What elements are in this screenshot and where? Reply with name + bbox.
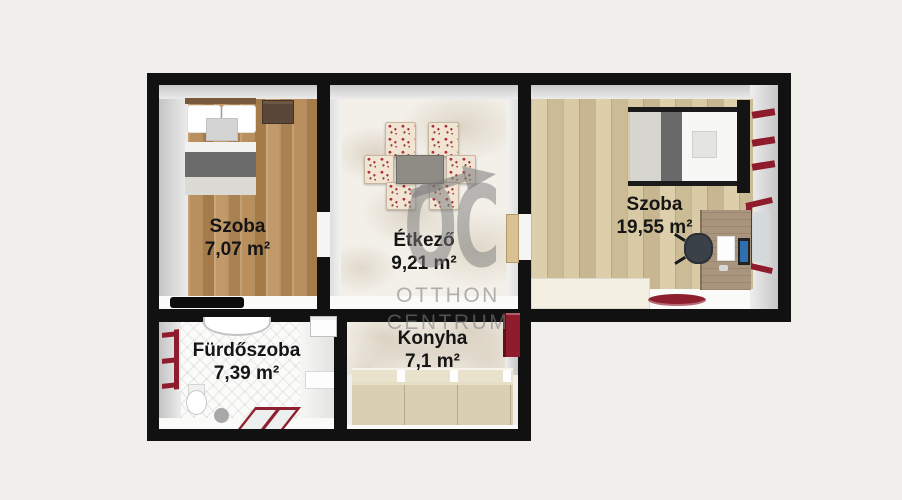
kitchen-label: Konyha 7,1 m²: [347, 327, 518, 373]
bed-mattress: [630, 112, 661, 181]
doorway-dining-bedroom-large: [518, 214, 531, 260]
bed-icon: [628, 105, 753, 198]
room-bedroom-small: Szoba 7,07 m²: [158, 85, 317, 309]
room-name: Konyha: [347, 327, 518, 350]
stool-icon: [214, 408, 229, 423]
room3-right-wall-3d: [750, 85, 778, 309]
nightstand-icon: [262, 100, 294, 124]
room-area: 7,39 m²: [159, 362, 334, 385]
rug-icon: [170, 297, 244, 308]
wardrobe-icon: [531, 278, 650, 309]
room-name: Étkező: [330, 229, 518, 252]
room-area: 9,21 m²: [330, 252, 518, 275]
dining-chair-icon: [386, 182, 416, 210]
room2-label: Étkező 9,21 m²: [330, 229, 518, 275]
room-bathroom: Fürdőszoba 7,39 m²: [159, 322, 334, 429]
mouse-icon: [719, 265, 728, 271]
room-bedroom-large: Szoba 19,55 m²: [531, 85, 778, 309]
room-name: Szoba: [158, 215, 317, 238]
room3-top-wall-3d: [531, 85, 778, 99]
room-name: Fürdőszoba: [159, 339, 334, 362]
room3-label: Szoba 19,55 m²: [571, 193, 738, 239]
bathroom-label: Fürdőszoba 7,39 m²: [159, 339, 334, 385]
wall-outer-top: [147, 73, 791, 85]
dining-chair-icon: [446, 155, 476, 184]
door-icon: [506, 214, 519, 263]
room1-label: Szoba 7,07 m²: [158, 215, 317, 261]
paper-icon: [717, 236, 735, 261]
bed-headboard: [737, 100, 750, 193]
floorplan-canvas: Szoba 7,07 m² Étkező 9,21 m²: [0, 0, 902, 500]
dining-table-icon: [396, 155, 444, 184]
bed-mattress: [185, 177, 256, 195]
bed-blanket: [661, 112, 682, 181]
room1-left-wall-3d: [158, 85, 188, 296]
kitchen-counter-icon: [352, 382, 513, 425]
room1-top-wall-3d: [158, 85, 317, 99]
dining-chair-icon: [428, 122, 459, 157]
dining-chair-icon: [429, 182, 459, 210]
wall-divider-bedroom-dining: [317, 73, 330, 322]
cushion-icon: [692, 131, 717, 158]
wall-outer-left: [147, 73, 159, 441]
kitchen-tall-cabinet-icon: [503, 313, 520, 357]
room-name: Szoba: [571, 193, 738, 216]
bed-blanket: [185, 152, 256, 177]
cushion-icon: [206, 118, 238, 141]
dining-chair-icon: [385, 122, 416, 157]
bed-icon: [185, 98, 256, 195]
room-area: 7,07 m²: [158, 238, 317, 261]
bed-sheet: [185, 142, 256, 152]
room-kitchen: Konyha 7,1 m²: [347, 322, 518, 429]
dining-chair-icon: [364, 155, 394, 184]
wall-outer-right: [778, 73, 791, 322]
room2-top-wall-3d: [330, 85, 518, 99]
doorway-bedroom-dining: [317, 212, 330, 257]
monitor-icon: [738, 238, 750, 265]
washing-machine-icon: [310, 316, 337, 337]
room-area: 7,1 m²: [347, 350, 518, 373]
toilet-icon: [186, 384, 206, 414]
bed-frame: [628, 181, 740, 186]
room-dining: Étkező 9,21 m²: [330, 85, 518, 309]
rug-icon: [648, 294, 706, 306]
room-area: 19,55 m²: [571, 216, 738, 239]
bed-headboard: [185, 98, 256, 104]
room2-floor-edge: [330, 296, 518, 309]
